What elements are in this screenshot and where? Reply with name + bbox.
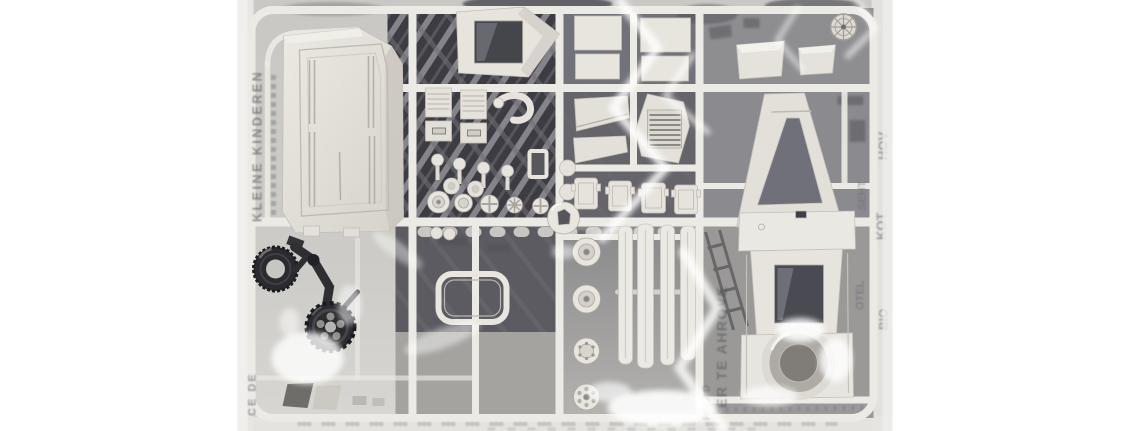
- part-frame-eyelet: [530, 151, 547, 177]
- ghost-text-right-3: OTEL: [855, 280, 867, 310]
- ghost-text-left-bottom: CE DE: [247, 372, 259, 416]
- ghost-text-right-2: SEHT: [857, 180, 869, 210]
- ghost-text-left-column: KLEINE KINDEREN: [251, 70, 265, 222]
- photo-model-kit-bag: KLEINE KINDEREN CE DE ER TE AHROVE REU D…: [237, 0, 893, 431]
- page: { "page": { "background_color": "#ffffff…: [0, 0, 1130, 431]
- part-hand-wheel: [831, 14, 857, 40]
- part-rubber-tyre: [254, 247, 298, 291]
- part-hull-shell: [283, 28, 404, 237]
- photo-render: KLEINE KINDEREN CE DE ER TE AHROVE REU D…: [237, 0, 893, 431]
